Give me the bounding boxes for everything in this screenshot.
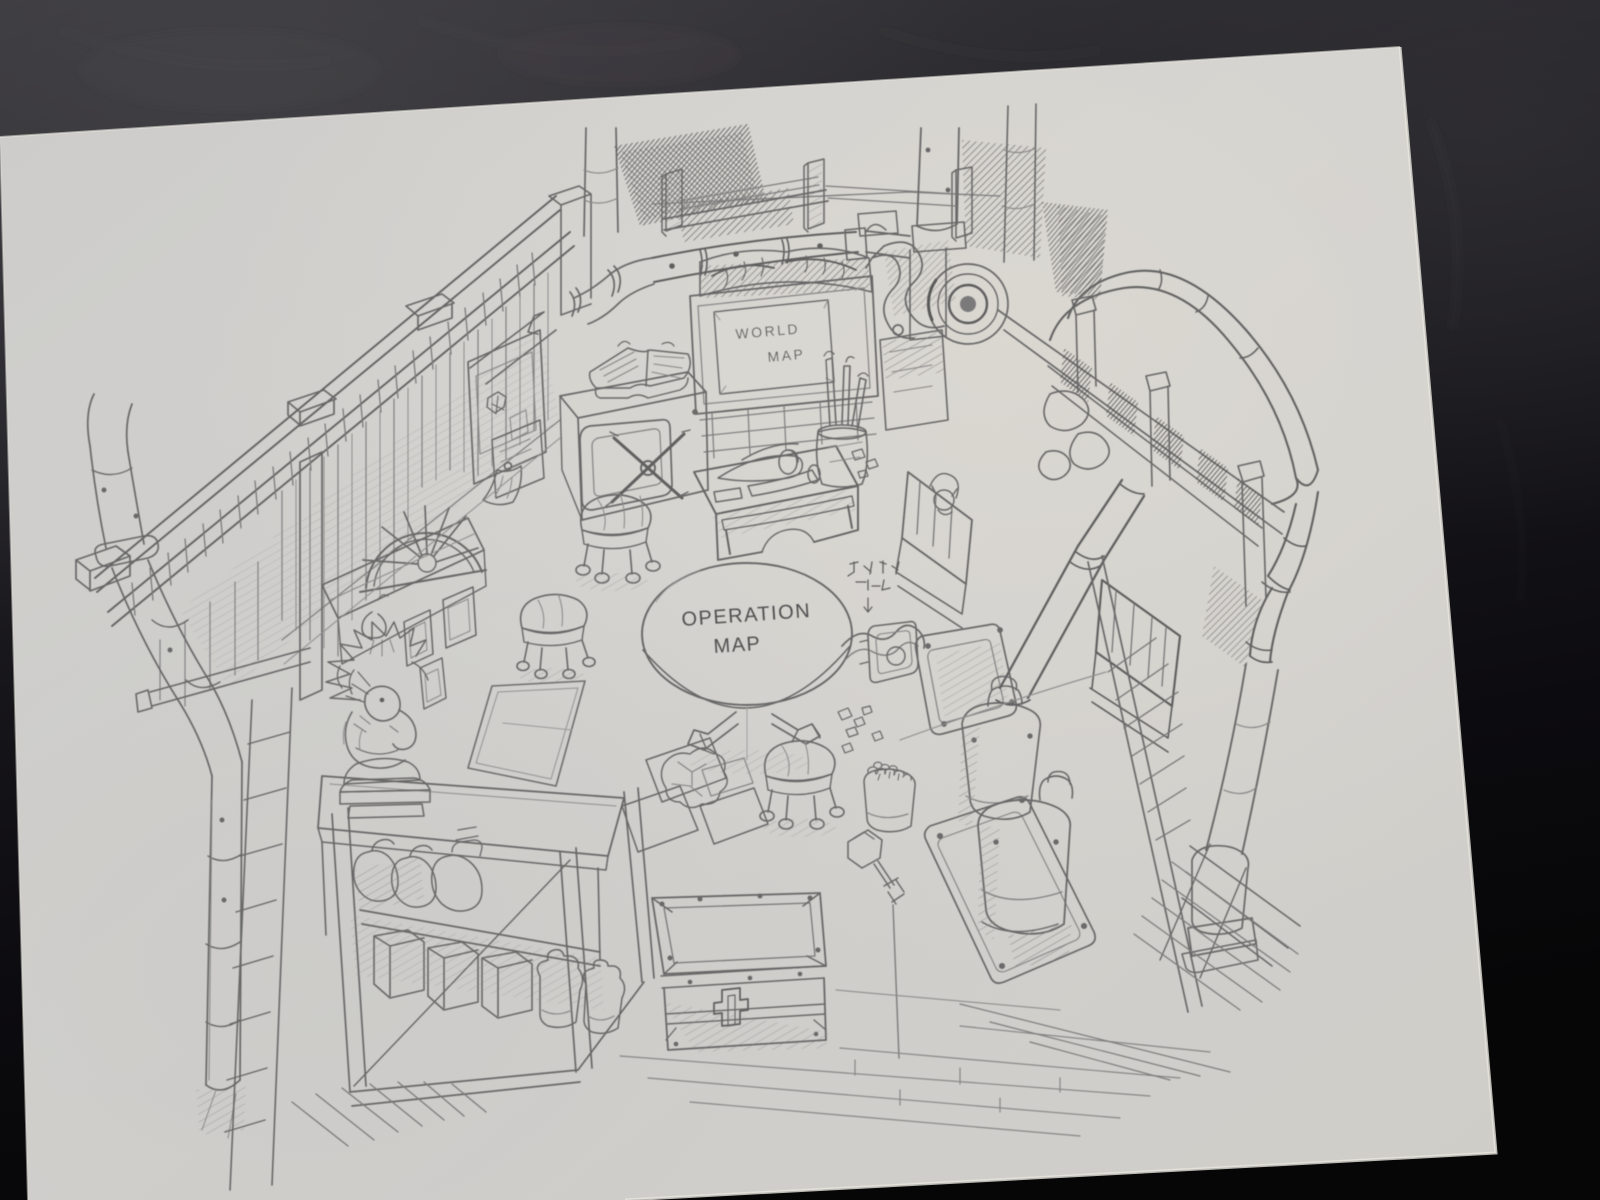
svg-text:MAP: MAP (713, 633, 762, 658)
svg-text:MAP: MAP (767, 346, 806, 365)
